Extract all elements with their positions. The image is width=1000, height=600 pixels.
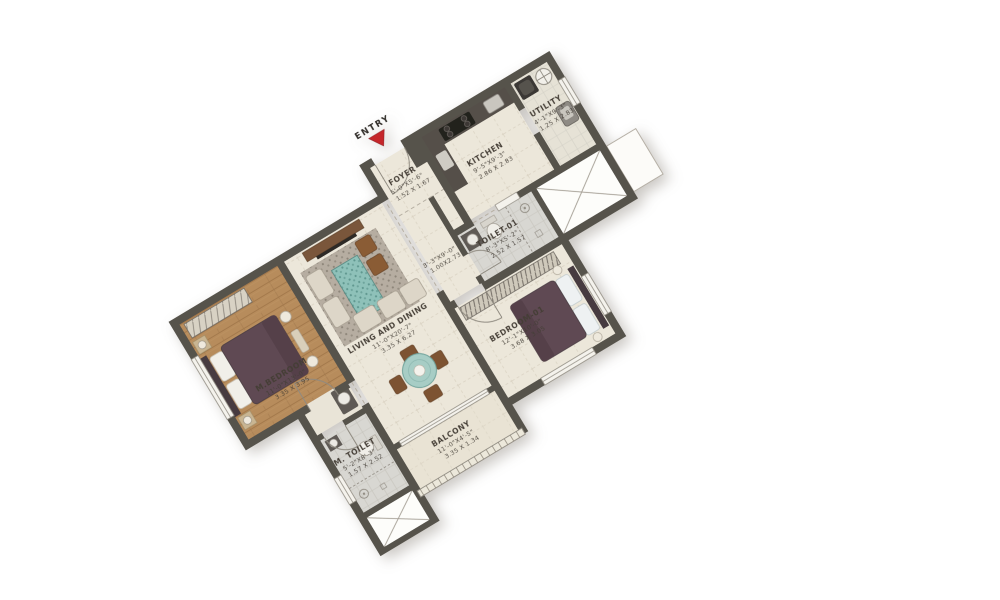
floor-plan-page: ENTRY M.BEDROOM 11'-0"X13'-0" 3.35 X 3.9… [0,0,1000,600]
floor-plan: ENTRY M.BEDROOM 11'-0"X13'-0" 3.35 X 3.9… [135,8,757,588]
entry-marker: ENTRY [353,114,400,157]
floor-plan-svg: ENTRY M.BEDROOM 11'-0"X13'-0" 3.35 X 3.9… [0,0,1000,600]
